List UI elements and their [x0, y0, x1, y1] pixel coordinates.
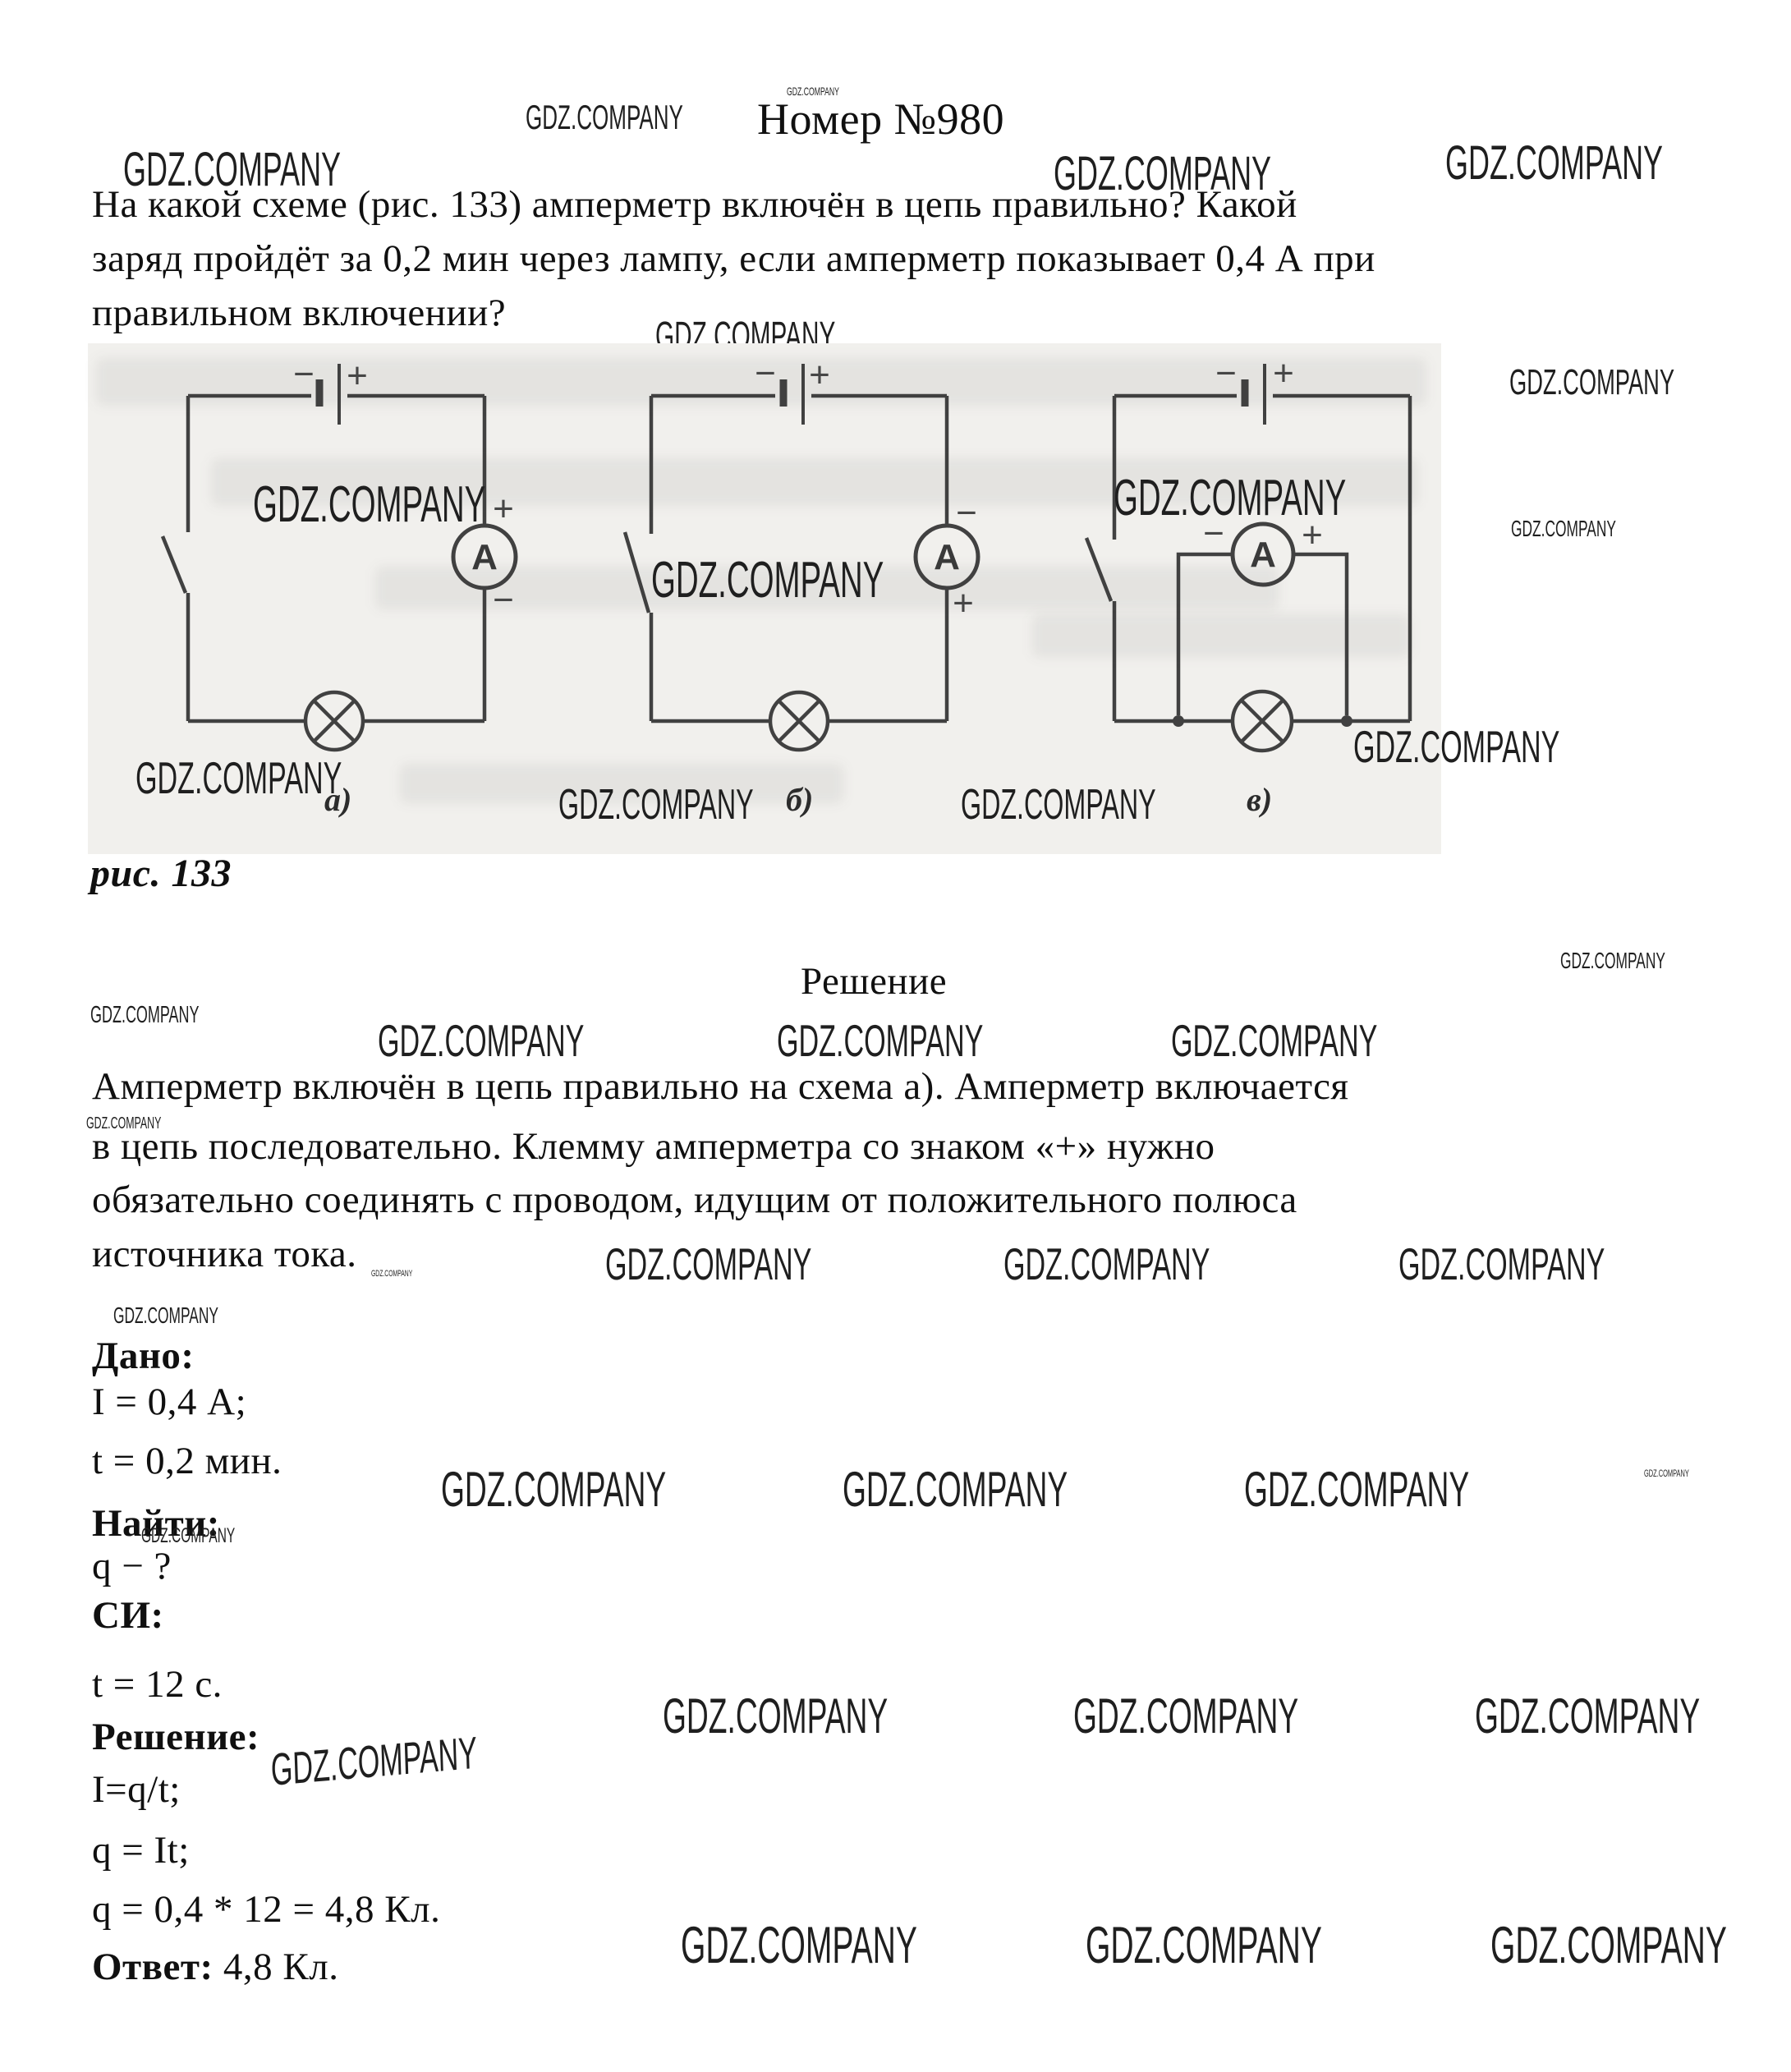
solution-paragraph-line: Амперметр включён в цепь правильно на сх… — [92, 1068, 1349, 1106]
watermark: GDZ.COMPANY — [1509, 365, 1674, 401]
watermark: GDZ.COMPANY — [135, 756, 342, 801]
scan-artifact — [1032, 614, 1410, 657]
solution-paragraph-line: в цепь последовательно. Клемму амперметр… — [92, 1128, 1215, 1166]
circuit-b-label: б) — [786, 783, 813, 816]
formula-step: q = It; — [92, 1831, 190, 1870]
watermark: GDZ.COMPANY — [1353, 724, 1559, 770]
solution-heading: Решение — [801, 962, 947, 1001]
watermark: GDZ.COMPANY — [961, 783, 1156, 826]
watermark: GDZ.COMPANY — [141, 1526, 235, 1546]
watermark: GDZ.COMPANY — [378, 1018, 584, 1064]
given-current: I = 0,4 А; — [92, 1383, 246, 1422]
switch-blade — [163, 536, 186, 593]
given-time: t = 0,2 мин. — [92, 1442, 282, 1481]
si-value: t = 12 с. — [92, 1665, 223, 1704]
given-label: Дано: — [92, 1337, 195, 1376]
watermark: GDZ.COMPANY — [777, 1018, 983, 1064]
page-title: Номер №980 — [757, 97, 1004, 141]
watermark: GDZ.COMPANY — [1475, 1692, 1700, 1741]
si-label: СИ: — [92, 1596, 164, 1635]
figure-caption: рис. 133 — [90, 854, 232, 894]
problem-line: заряд пройдёт за 0,2 мин через лампу, ес… — [92, 240, 1375, 278]
watermark: GDZ.COMPANY — [526, 100, 683, 135]
watermark: GDZ.COMPANY — [270, 1730, 478, 1793]
watermark: GDZ.COMPANY — [1244, 1465, 1469, 1514]
watermark: GDZ.COMPANY — [113, 1304, 218, 1327]
watermark: GDZ.COMPANY — [843, 1465, 1068, 1514]
watermark: GDZ.COMPANY — [1644, 1468, 1689, 1478]
solution-paragraph-line: источника тока. — [92, 1235, 357, 1274]
problem-line: правильном включении? — [92, 294, 506, 333]
watermark: GDZ.COMPANY — [1490, 1920, 1727, 1972]
document-page: GDZ.COMPANY GDZ.COMPANY Номер №980 GDZ.C… — [0, 0, 1791, 2072]
watermark: GDZ.COMPANY — [1073, 1692, 1298, 1741]
formula-step: I=q/t; — [92, 1771, 181, 1809]
watermark: GDZ.COMPANY — [1511, 517, 1616, 540]
circuit-v — [1086, 364, 1410, 751]
watermark: GDZ.COMPANY — [1445, 140, 1663, 187]
solution-paragraph-line: обязательно соединять с проводом, идущим… — [92, 1181, 1297, 1220]
watermark: GDZ.COMPANY — [90, 1004, 200, 1027]
circuit-v-label: в) — [1247, 783, 1272, 816]
watermark: GDZ.COMPANY — [1114, 473, 1346, 524]
watermark: GDZ.COMPANY — [681, 1920, 917, 1972]
problem-line: На какой схеме (рис. 133) амперметр вклю… — [92, 186, 1297, 224]
wire — [188, 396, 484, 721]
watermark: GDZ.COMPANY — [651, 555, 884, 606]
watermark: GDZ.COMPANY — [1171, 1018, 1377, 1064]
answer-line: Ответ: 4,8 Кл. — [92, 1948, 338, 1987]
steps-label: Решение: — [92, 1718, 259, 1757]
answer-label: Ответ: — [92, 1946, 214, 1988]
circuit-a — [163, 364, 516, 750]
watermark: GDZ.COMPANY — [441, 1465, 666, 1514]
formula-step: q = 0,4 * 12 = 4,8 Кл. — [92, 1891, 440, 1929]
watermark: GDZ.COMPANY — [1003, 1242, 1210, 1287]
junction-dot — [1341, 715, 1352, 727]
watermark: GDZ.COMPANY — [1560, 949, 1665, 972]
watermark: GDZ.COMPANY — [663, 1692, 888, 1741]
watermark: GDZ.COMPANY — [1398, 1242, 1605, 1287]
answer-value: 4,8 Кл. — [214, 1946, 339, 1988]
watermark: GDZ.COMPANY — [558, 783, 754, 826]
watermark: GDZ.COMPANY — [1086, 1920, 1322, 1972]
watermark: GDZ.COMPANY — [253, 480, 485, 531]
scan-artifact — [96, 358, 1426, 406]
find-value: q − ? — [92, 1547, 172, 1586]
watermark: GDZ.COMPANY — [605, 1242, 811, 1287]
watermark: GDZ.COMPANY — [371, 1270, 412, 1279]
junction-dot — [1173, 715, 1184, 727]
